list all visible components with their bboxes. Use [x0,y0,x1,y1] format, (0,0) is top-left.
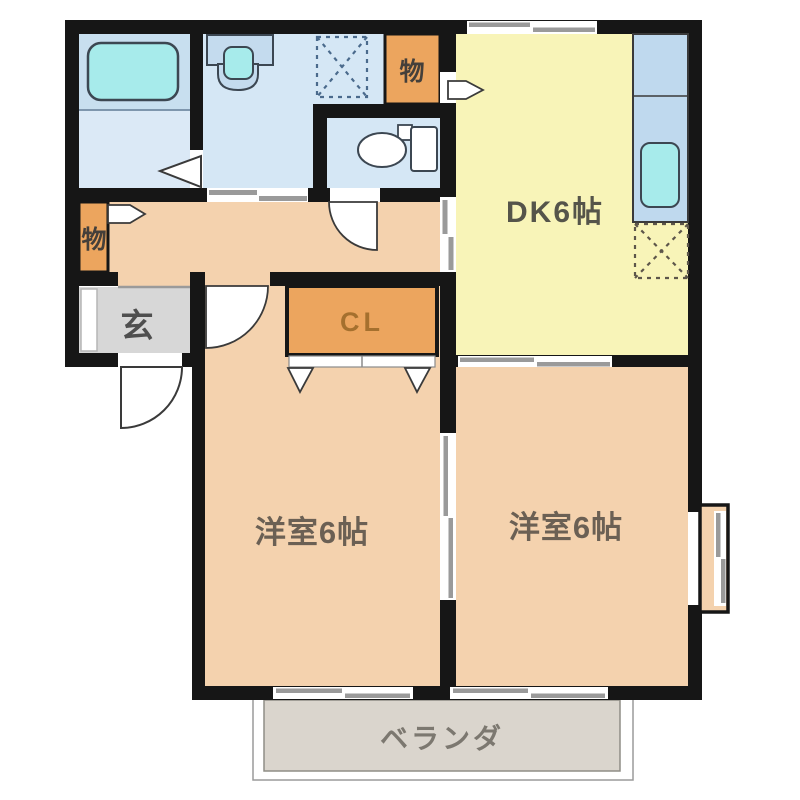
genkan-label: 玄 [121,307,154,344]
shoe-cabinet [81,289,97,351]
wall-left [65,20,79,367]
bathtub-icon [88,43,178,100]
wall-h188-b [308,188,330,202]
dk-label: DK6帖 [506,196,604,229]
bay-window-pane-2 [721,559,726,603]
wall-dk-left-b [440,103,456,197]
storage-left-label: 物 [81,226,106,254]
bedrooms-slider-panel-1 [444,436,449,516]
wall-right-lower [688,605,702,700]
dk-sliding-door [440,197,456,272]
bedroom-right-slider-panel-1 [460,358,534,363]
wall-bedroom-left-outer [192,353,205,700]
wall-dk-left-a [440,34,456,72]
wall-h188-a [79,188,207,202]
dk-top-window-pane-2 [533,28,595,33]
wall-genkan-right [190,272,205,353]
entrance-door-arc [121,367,182,428]
bedroom-right-slider-panel-2 [537,362,610,367]
bedroom-right-window-pane-2 [531,694,605,699]
hallway-step-area [118,272,190,288]
bay-window-pane-1 [716,513,721,557]
dk-slider-panel-1 [443,200,448,234]
washroom-slider-panel-1 [209,190,257,195]
bedrooms-slider-panel-2 [449,518,454,598]
wall-divider-upper [440,272,456,433]
dk-top-window-pane-1 [469,23,530,28]
bedroom-left-window-pane-1 [276,689,342,694]
wall-washroom-toilet-h [313,104,440,118]
toilet-bowl-icon [358,133,406,167]
washroom-slider-panel-2 [259,196,307,201]
dk-slider-panel-2 [449,237,454,270]
storage-top-label: 物 [399,58,424,86]
floorplan-page: ベランダ 物 物 CL [0,0,800,800]
wall-bottom [192,686,702,700]
bedroom-right-window-pane-1 [453,689,528,694]
veranda: ベランダ [253,696,633,780]
floorplan-svg: ベランダ 物 物 CL [0,0,800,800]
wall-divider-lower [440,600,456,686]
wall-bath-washroom [190,34,203,150]
kitchen-sink-icon [641,143,679,207]
veranda-label: ベランダ [380,722,504,754]
wall-right-upper [688,20,702,512]
washbasin-sink-icon [224,47,253,79]
bay-window [700,505,728,612]
toilet-doorway [330,188,380,202]
wall-top [65,20,702,34]
wall-hall-bottom-a [65,272,118,286]
toilet-tank [411,127,437,171]
entrance-doorway [118,353,182,367]
wall-hall-bottom-b [270,272,456,286]
bedroom-left-label: 洋室6帖 [255,515,369,550]
cl-label: CL [340,307,384,337]
bedroom-left-window-pane-2 [345,694,410,699]
bedroom-right-label: 洋室6帖 [509,510,623,545]
